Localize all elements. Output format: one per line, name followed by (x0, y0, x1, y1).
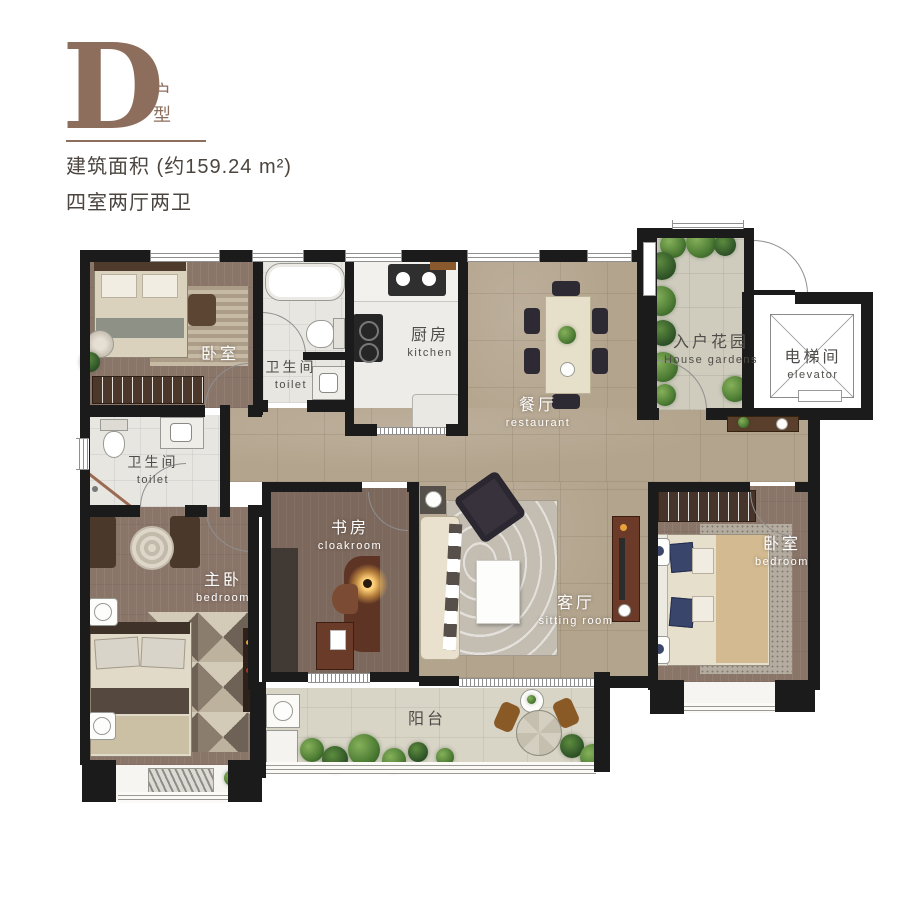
wall (185, 505, 207, 517)
wall (80, 505, 140, 517)
wall (370, 672, 419, 682)
floor-plan-page: D 户型 建筑面积 (约159.24 m²) 四室两厅两卫 (0, 0, 900, 900)
bedroom-tl-wardrobe (92, 376, 204, 404)
room-label-elevator: 电梯间 elevator (784, 343, 841, 381)
wall (80, 250, 150, 262)
burner-icon (359, 343, 379, 363)
wall (400, 250, 467, 262)
wall (648, 482, 658, 690)
wall (302, 250, 345, 262)
sink-basin-icon (422, 272, 436, 286)
bath1-sink (319, 373, 338, 393)
dining-plate (560, 362, 575, 377)
wall (458, 250, 468, 436)
kitchen-sliding-door (377, 427, 446, 435)
bedroom-r-wardrobe (658, 490, 756, 522)
wall (218, 250, 252, 262)
room-label-bath2: 卫生间 toilet (128, 452, 179, 486)
room-label-living: 客厅 sitting room (539, 589, 614, 627)
pillow-white (692, 548, 714, 574)
dining-chair (524, 308, 540, 334)
header-rule (66, 140, 206, 142)
wall (345, 250, 354, 436)
dining-chair (592, 348, 608, 374)
wall (808, 415, 820, 690)
wall (637, 408, 659, 420)
bay-window-br (684, 703, 775, 713)
door-arc-entrance (753, 240, 808, 294)
window (467, 250, 540, 262)
decor-bowl-icon (618, 604, 631, 617)
console-plant-icon (738, 417, 749, 428)
master-pillow (94, 637, 140, 670)
wall (446, 424, 468, 436)
shower-head-icon (92, 486, 98, 492)
burner-icon (359, 321, 379, 341)
study-cabinet (270, 548, 298, 676)
room-label-dining: 餐厅 restaurant (506, 391, 571, 429)
master-cabinet (170, 516, 200, 568)
window (150, 250, 220, 262)
bedroom-tl-pillow (101, 274, 137, 298)
room-label-balcony: 阳台 (408, 705, 446, 729)
pillow-white (692, 596, 714, 622)
wall (795, 482, 818, 492)
tv-icon (619, 538, 625, 600)
room-label-kitchen: 厨房 kitchen (407, 321, 452, 359)
decor-vase-icon (620, 524, 627, 531)
wall (253, 250, 263, 415)
wall (744, 228, 754, 292)
wall (82, 760, 116, 802)
study-balcony-window (308, 673, 370, 683)
console-bowl (776, 418, 788, 430)
kitchen-cutting-board (430, 261, 456, 270)
bay-window-bl (118, 792, 228, 803)
room-label-master: 主卧 bedroom (196, 566, 250, 604)
master-round-rug (130, 526, 174, 570)
room-label-study: 书房 cloakroom (318, 514, 382, 552)
master-pillow (140, 637, 186, 669)
wall (861, 292, 873, 420)
balcony-table (516, 710, 562, 756)
balcony-sink-unit (266, 730, 298, 766)
coffee-table (476, 560, 520, 624)
room-label-bedroom-r: 卧室 bedroom (755, 530, 809, 568)
wall (80, 405, 205, 417)
toilet-tank-bath1 (333, 318, 345, 349)
room-label-bedroom-tl: 卧室 (201, 340, 239, 364)
area-text: 建筑面积 (约159.24 m²) (66, 150, 292, 179)
toilet-tank-bath2 (100, 419, 128, 431)
window (672, 220, 744, 229)
window (76, 438, 89, 470)
wall (220, 405, 230, 517)
bedroom-tl-chair (188, 294, 216, 326)
toilet-bath2 (103, 431, 125, 458)
entry-door-leaf (753, 290, 795, 295)
wall (538, 250, 587, 262)
wall (409, 482, 419, 682)
study-paper (330, 630, 346, 650)
balcony-railing (266, 762, 596, 774)
wall (419, 676, 459, 686)
desk-lamp-icon (363, 579, 372, 588)
wall (345, 424, 377, 436)
wall (648, 482, 750, 492)
dining-chair (592, 308, 608, 334)
wall (262, 482, 271, 682)
dining-chair (524, 348, 540, 374)
window (345, 250, 402, 262)
master-throw (91, 688, 189, 714)
window (587, 250, 632, 262)
bedroom-tl-pillow (142, 274, 178, 298)
unit-type-label: 户型 (148, 82, 174, 128)
stool-ring-icon (93, 717, 111, 735)
layout-text: 四室两厅两卫 (66, 186, 192, 215)
wall (262, 482, 362, 492)
plant-icon (408, 742, 428, 762)
room-label-bath1: 卫生间 toilet (266, 357, 317, 391)
bathtub (265, 263, 345, 301)
washer-drum-icon (273, 701, 293, 721)
dining-chair (552, 281, 580, 296)
wall (228, 760, 262, 802)
plant-icon (300, 738, 324, 762)
flower-icon (527, 695, 536, 704)
balcony-sliding-door (459, 678, 594, 687)
elevator-door (798, 390, 842, 402)
room-label-garden: 入户花园 House gardens (664, 328, 758, 366)
wall (253, 400, 268, 412)
sink-basin-icon (396, 272, 410, 286)
garden-wall-window (643, 242, 656, 296)
wall (650, 680, 684, 714)
nightstand-ring-icon (94, 603, 112, 621)
study-chair (332, 584, 358, 614)
dining-table (545, 296, 591, 394)
master-armchair (86, 516, 116, 568)
window (252, 250, 304, 262)
toilet-bath1 (306, 320, 334, 348)
wall (775, 680, 815, 712)
bath2-sink (170, 423, 192, 442)
table-plant-icon (558, 326, 576, 344)
wall (262, 672, 308, 682)
side-table-ring-icon (425, 491, 442, 508)
